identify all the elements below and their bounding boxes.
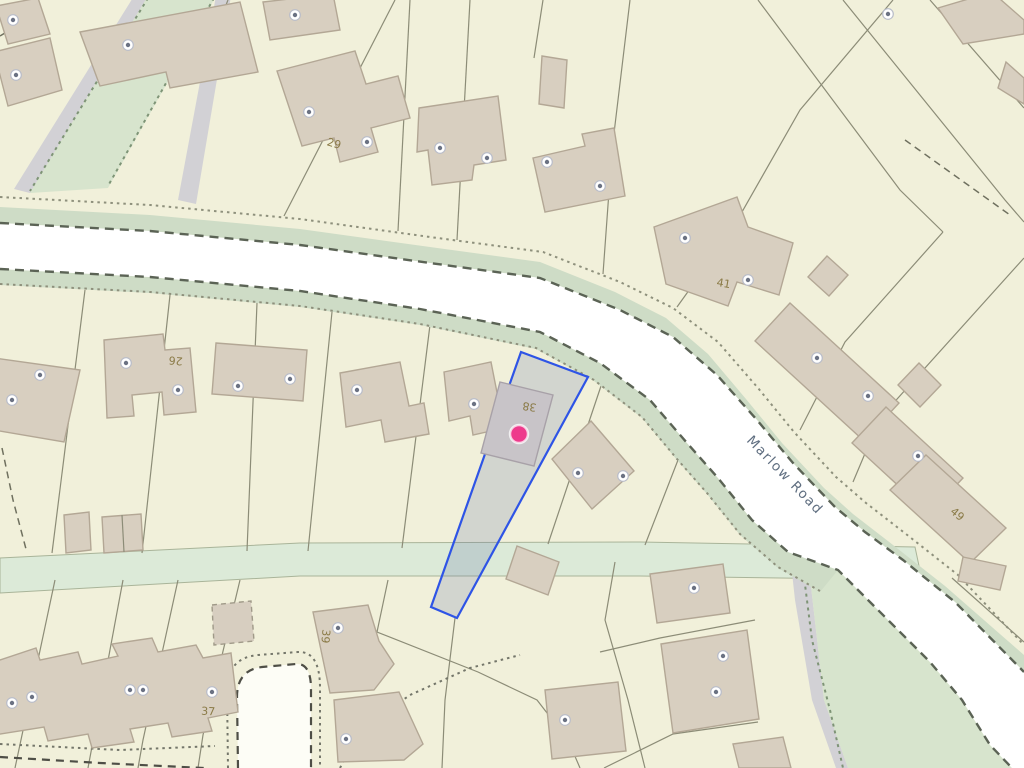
house-number-label: 26 <box>168 353 183 367</box>
address-point-icon <box>35 370 46 381</box>
address-point-icon <box>173 385 184 396</box>
address-point-icon <box>711 687 722 698</box>
address-point-icon <box>290 10 301 21</box>
map-viewport[interactable]: 29412638493937 Marlow Road <box>0 0 1024 768</box>
address-point-icon <box>8 15 19 26</box>
house-number-label: 41 <box>716 276 732 291</box>
address-point-icon <box>123 40 134 51</box>
house-number-label: 38 <box>522 399 538 414</box>
address-point-icon <box>573 468 584 479</box>
address-point-icon <box>304 107 315 118</box>
address-point-icon <box>863 391 874 402</box>
address-point-icon <box>689 583 700 594</box>
address-point-icon <box>7 698 18 709</box>
address-point-icon <box>595 181 606 192</box>
address-point-icon <box>285 374 296 385</box>
address-point-icon <box>560 715 571 726</box>
address-point-icon <box>812 353 823 364</box>
address-point-icon <box>341 734 352 745</box>
address-point-icon <box>482 153 493 164</box>
address-point-icon <box>883 9 894 20</box>
address-point-icon <box>207 687 218 698</box>
address-point-icon <box>680 233 691 244</box>
house-number-label: 37 <box>201 705 216 719</box>
address-point-icon <box>233 381 244 392</box>
address-point-icon <box>362 137 373 148</box>
address-point-icon <box>11 70 22 81</box>
selected-location-marker[interactable] <box>510 425 528 443</box>
house-number-label: 39 <box>318 629 332 644</box>
address-point-icon <box>7 395 18 406</box>
address-point-icon <box>138 685 149 696</box>
address-point-icon <box>125 685 136 696</box>
address-point-icon <box>121 358 132 369</box>
address-point-icon <box>469 399 480 410</box>
address-point-icon <box>333 623 344 634</box>
address-point-icon <box>913 451 924 462</box>
address-point-icon <box>743 275 754 286</box>
address-point-icon <box>435 143 446 154</box>
address-point-icon <box>618 471 629 482</box>
address-point-icon <box>352 385 363 396</box>
outbuilding-dashed <box>212 601 254 645</box>
address-point-icon <box>542 157 553 168</box>
map-canvas[interactable]: 29412638493937 Marlow Road <box>0 0 1024 768</box>
address-point-icon <box>718 651 729 662</box>
address-point-icon <box>27 692 38 703</box>
